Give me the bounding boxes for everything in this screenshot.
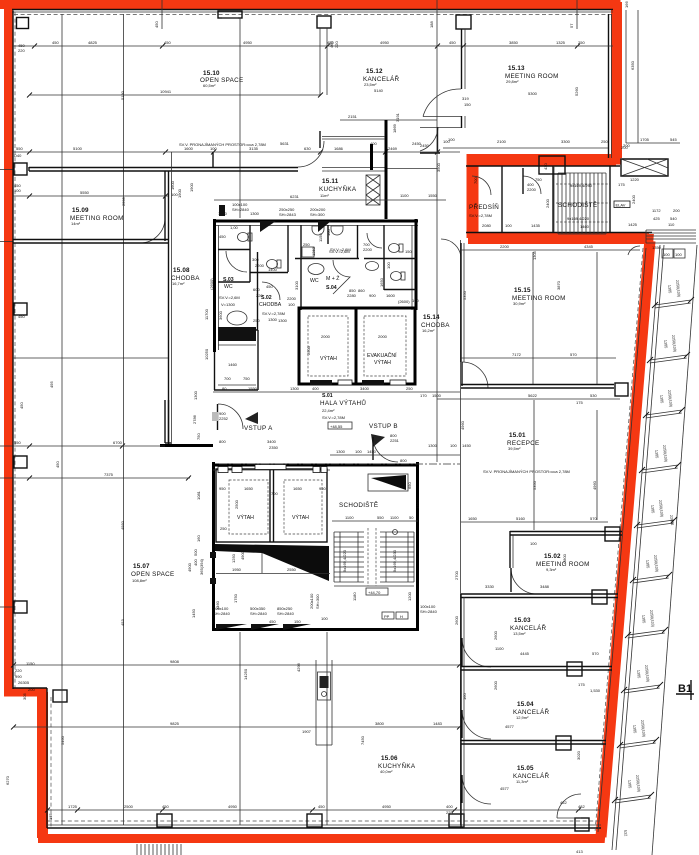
svg-text:400: 400: [446, 804, 453, 809]
svg-text:15.06: 15.06: [381, 755, 398, 762]
svg-text:413: 413: [576, 849, 583, 854]
svg-text:1,530: 1,530: [590, 688, 601, 693]
svg-text:D40: D40: [14, 153, 22, 158]
svg-text:450: 450: [154, 21, 159, 28]
svg-text:SH=2840: SH=2840: [420, 609, 438, 614]
svg-text:650: 650: [407, 482, 412, 489]
svg-text:1435: 1435: [531, 223, 541, 228]
svg-text:450: 450: [164, 40, 171, 45]
svg-text:1250: 1250: [311, 246, 316, 256]
svg-text:188: 188: [429, 21, 434, 28]
svg-text:1650: 1650: [244, 486, 254, 491]
svg-text:540: 540: [670, 216, 677, 221]
svg-text:250: 250: [406, 386, 413, 391]
svg-text:3870: 3870: [556, 280, 561, 290]
svg-text:100: 100: [386, 262, 391, 269]
svg-text:450: 450: [327, 40, 334, 45]
svg-text:4296: 4296: [296, 662, 301, 672]
svg-text:1300: 1300: [428, 443, 438, 448]
svg-text:1300: 1300: [278, 318, 288, 323]
svg-text:SV.V.=2,78M: SV.V.=2,78M: [262, 311, 285, 316]
svg-text:225: 225: [446, 810, 453, 815]
svg-text:3100: 3100: [294, 280, 299, 290]
svg-text:50: 50: [409, 515, 414, 520]
svg-text:750: 750: [243, 376, 250, 381]
svg-text:150: 150: [294, 619, 301, 624]
svg-text:450: 450: [219, 234, 226, 239]
svg-text:15.05: 15.05: [517, 765, 534, 772]
svg-text:100: 100: [326, 229, 331, 236]
svg-text:ELAV: ELAV: [616, 203, 626, 208]
svg-text:750: 750: [535, 177, 542, 182]
svg-text:9825: 9825: [170, 721, 180, 726]
svg-text:B1: B1: [678, 683, 692, 695]
svg-text:450: 450: [55, 461, 60, 468]
svg-text:250: 250: [253, 318, 260, 323]
svg-text:300: 300: [252, 257, 259, 262]
svg-text:1180: 1180: [352, 592, 357, 601]
svg-text:WC: WC: [224, 284, 233, 290]
svg-text:2200: 2200: [255, 263, 265, 268]
svg-text:57: 57: [569, 23, 574, 28]
svg-text:700: 700: [271, 491, 278, 496]
svg-text:450: 450: [18, 314, 25, 319]
svg-text:7375: 7375: [104, 472, 114, 477]
svg-text:2500: 2500: [124, 804, 134, 809]
svg-text:482: 482: [578, 804, 585, 809]
svg-text:400: 400: [312, 386, 319, 391]
svg-text:1600: 1600: [386, 293, 396, 298]
svg-text:175: 175: [48, 813, 53, 820]
svg-text:SCHODIŠTĚ: SCHODIŠTĚ: [558, 200, 597, 209]
svg-text:2200: 2200: [500, 244, 510, 249]
svg-text:11700: 11700: [204, 308, 209, 320]
svg-text:5631: 5631: [280, 141, 290, 146]
svg-text:(2600): (2600): [209, 278, 214, 290]
svg-text:1300: 1300: [336, 449, 346, 454]
svg-text:6700: 6700: [113, 440, 123, 445]
svg-text:200: 200: [28, 687, 35, 692]
svg-text:39,5m²: 39,5m²: [508, 446, 521, 451]
svg-text:2400: 2400: [545, 198, 550, 208]
svg-text:15.14: 15.14: [423, 314, 440, 321]
svg-text:CHODBA: CHODBA: [259, 302, 282, 308]
svg-text:100: 100: [505, 223, 512, 228]
svg-text:4950: 4950: [380, 40, 390, 45]
svg-text:HALA VÝTAHŮ: HALA VÝTAHŮ: [320, 398, 366, 407]
svg-text:40,0m²: 40,0m²: [380, 769, 393, 774]
svg-text:OPEN SPACE: OPEN SPACE: [131, 571, 174, 578]
svg-text:5350: 5350: [462, 290, 467, 300]
svg-text:1550: 1550: [428, 193, 438, 198]
svg-text:1869: 1869: [392, 123, 397, 133]
svg-text:S.03: S.03: [223, 277, 234, 283]
svg-text:900: 900: [369, 293, 376, 298]
svg-text:6350: 6350: [630, 60, 635, 70]
svg-text:S.02: S.02: [261, 295, 272, 301]
svg-text:1460: 1460: [228, 362, 238, 367]
svg-text:160: 160: [462, 693, 467, 700]
svg-text:110: 110: [668, 222, 675, 227]
svg-text:VSTUP B: VSTUP B: [369, 423, 398, 430]
svg-text:4960: 4960: [460, 420, 465, 430]
svg-text:1500: 1500: [432, 393, 442, 398]
svg-text:SV.V.=2,6M: SV.V.=2,6M: [219, 295, 240, 300]
svg-text:2280: 2280: [347, 293, 357, 298]
svg-text:530: 530: [590, 393, 597, 398]
svg-text:200x100: 200x100: [309, 593, 314, 609]
svg-text:SV.V.=2,78M: SV.V.=2,78M: [322, 415, 345, 420]
svg-text:4950: 4950: [228, 804, 238, 809]
svg-text:630: 630: [304, 146, 311, 151]
svg-text:11m²: 11m²: [320, 193, 329, 198]
svg-text:PŘEDSÍŇ: PŘEDSÍŇ: [469, 202, 499, 211]
svg-text:9x169,4/220: 9x169,4/220: [567, 216, 590, 221]
svg-text:5300: 5300: [528, 91, 538, 96]
svg-text:250: 250: [578, 40, 585, 45]
svg-text:100: 100: [530, 541, 537, 546]
svg-text:750: 750: [196, 433, 201, 440]
svg-text:15.04: 15.04: [517, 701, 534, 708]
svg-text:3600: 3600: [218, 310, 223, 320]
svg-text:450: 450: [19, 402, 24, 409]
svg-text:2450: 2450: [420, 143, 430, 148]
svg-text:1100: 1100: [400, 193, 409, 198]
svg-text:700: 700: [473, 177, 478, 184]
svg-text:9x169,4/220: 9x169,4/220: [342, 549, 347, 572]
svg-text:1907: 1907: [302, 729, 312, 734]
svg-text:1172: 1172: [652, 208, 661, 213]
svg-text:1250: 1250: [231, 553, 236, 563]
svg-text:2350: 2350: [269, 445, 279, 450]
svg-text:3850: 3850: [509, 40, 519, 45]
svg-text:1305: 1305: [532, 250, 537, 260]
svg-text:1483: 1483: [433, 721, 443, 726]
svg-text:15.10: 15.10: [203, 70, 220, 77]
svg-text:100: 100: [675, 252, 682, 257]
svg-text:175: 175: [578, 682, 585, 687]
svg-text:2400: 2400: [631, 194, 636, 204]
svg-text:10941: 10941: [160, 89, 172, 94]
svg-text:2786: 2786: [192, 414, 197, 424]
svg-text:220: 220: [15, 668, 22, 673]
svg-text:1100: 1100: [345, 515, 354, 520]
svg-text:7450: 7450: [360, 735, 365, 745]
svg-text:150: 150: [405, 249, 412, 254]
svg-text:4900: 4900: [240, 550, 245, 560]
svg-text:1750: 1750: [233, 593, 238, 603]
svg-text:14m²: 14m²: [71, 221, 81, 226]
svg-text:2700: 2700: [454, 570, 459, 580]
svg-text:3300: 3300: [561, 139, 571, 144]
svg-text:4345: 4345: [584, 244, 594, 249]
svg-text:SV.V. PRONAJÍMANÝCH PROSTOR=: SV.V. PRONAJÍMANÝCH PROSTOR=cca 2,78M: [179, 142, 266, 147]
svg-text:100: 100: [288, 302, 295, 307]
svg-text:4950: 4950: [120, 520, 125, 530]
svg-text:VÝTAH: VÝTAH: [292, 514, 309, 521]
svg-text:450: 450: [266, 284, 273, 289]
svg-text:15.01: 15.01: [509, 432, 526, 439]
svg-text:S.01: S.01: [322, 393, 333, 399]
svg-text:3020: 3020: [576, 750, 581, 760]
svg-text:6270: 6270: [5, 775, 10, 785]
svg-text:100: 100: [448, 137, 455, 142]
svg-text:1400: 1400: [268, 267, 278, 272]
svg-text:108,8m²: 108,8m²: [132, 578, 147, 583]
svg-text:200: 200: [673, 208, 680, 213]
svg-text:PP: PP: [384, 614, 390, 619]
svg-text:3488: 3488: [540, 584, 550, 589]
svg-text:WC: WC: [310, 278, 319, 284]
svg-text:80: 80: [222, 386, 227, 391]
svg-text:4950: 4950: [243, 40, 253, 45]
svg-text:5460: 5460: [60, 735, 65, 745]
svg-text:550: 550: [16, 146, 23, 151]
svg-text:3800: 3800: [375, 721, 385, 726]
svg-text:11,3m²: 11,3m²: [516, 779, 529, 784]
svg-text:2500: 2500: [234, 499, 239, 509]
svg-text:950: 950: [219, 486, 226, 491]
svg-text:6231: 6231: [290, 194, 300, 199]
svg-text:4577: 4577: [500, 786, 510, 791]
svg-text:1300: 1300: [268, 317, 278, 322]
svg-text:570: 570: [570, 352, 577, 357]
svg-text:570: 570: [590, 516, 597, 521]
svg-text:VÝTAH: VÝTAH: [320, 355, 337, 362]
svg-text:1725: 1725: [68, 804, 78, 809]
svg-text:2600: 2600: [493, 630, 498, 640]
svg-text:+44,70: +44,70: [368, 590, 381, 595]
svg-text:5550: 5550: [80, 190, 90, 195]
svg-text:1450: 1450: [191, 608, 196, 618]
svg-text:SH=2840: SH=2840: [213, 611, 231, 616]
svg-text:600: 600: [253, 287, 260, 292]
svg-text:29,8m²: 29,8m²: [506, 79, 519, 84]
svg-text:4445: 4445: [520, 651, 530, 656]
svg-text:16,2m²: 16,2m²: [422, 328, 435, 333]
svg-text:452: 452: [560, 800, 567, 805]
svg-text:1220: 1220: [630, 177, 640, 182]
svg-text:2151: 2151: [348, 114, 358, 119]
svg-text:450: 450: [318, 804, 325, 809]
svg-text:1686: 1686: [334, 146, 344, 151]
svg-text:9x169,4/230: 9x169,4/230: [392, 549, 397, 572]
svg-text:3330: 3330: [485, 584, 495, 589]
svg-text:1081: 1081: [196, 490, 201, 500]
svg-text:2000: 2000: [321, 334, 331, 339]
svg-text:14250: 14250: [243, 668, 248, 680]
svg-text:VÝTAH: VÝTAH: [374, 359, 391, 366]
svg-text:13,5m²: 13,5m²: [513, 631, 526, 636]
svg-text:SV.V.=2,78M: SV.V.=2,78M: [469, 213, 492, 218]
svg-text:1900: 1900: [177, 188, 182, 198]
svg-text:800: 800: [400, 458, 407, 463]
svg-text:(2600): (2600): [398, 299, 410, 304]
svg-text:800: 800: [219, 439, 226, 444]
svg-text:450: 450: [162, 804, 169, 809]
svg-text:950: 950: [319, 486, 326, 491]
svg-text:150: 150: [464, 102, 471, 107]
svg-text:30,9m²: 30,9m²: [513, 301, 526, 306]
svg-text:2200: 2200: [363, 247, 373, 252]
svg-text:15.09: 15.09: [72, 207, 89, 214]
svg-text:7172: 7172: [512, 352, 522, 357]
svg-text:1150: 1150: [26, 661, 35, 666]
svg-text:1550: 1550: [248, 386, 258, 391]
svg-text:15.12: 15.12: [366, 68, 383, 75]
svg-text:26305: 26305: [18, 680, 30, 685]
svg-text:1600: 1600: [170, 180, 175, 190]
svg-text:1450: 1450: [462, 443, 472, 448]
svg-text:1100: 1100: [495, 646, 504, 651]
svg-text:VSTUP A: VSTUP A: [244, 425, 273, 432]
svg-text:2469: 2469: [388, 146, 398, 151]
svg-text:2200: 2200: [527, 187, 537, 192]
svg-text:4825: 4825: [88, 40, 98, 45]
svg-text:VÝTAH: VÝTAH: [237, 514, 254, 521]
svg-text:550: 550: [14, 440, 21, 445]
svg-text:425: 425: [653, 216, 660, 221]
svg-text:SV.V.=2,6M: SV.V.=2,6M: [329, 249, 350, 254]
svg-text:4960: 4960: [592, 480, 597, 490]
svg-text:430: 430: [543, 163, 548, 170]
svg-text:175: 175: [618, 182, 625, 187]
svg-text:15.02: 15.02: [544, 553, 561, 560]
svg-text:450: 450: [269, 619, 276, 624]
svg-text:5260: 5260: [574, 86, 579, 96]
svg-text:990: 990: [15, 674, 22, 679]
svg-text:SH=2840: SH=2840: [250, 611, 268, 616]
svg-text:532: 532: [623, 830, 628, 837]
svg-text:KUCHYŇKA: KUCHYŇKA: [319, 184, 357, 193]
svg-text:23,5m²: 23,5m²: [364, 82, 377, 87]
svg-text:3500: 3500: [436, 162, 441, 172]
svg-text:SH=2840: SH=2840: [277, 611, 295, 616]
svg-text:2550: 2550: [287, 567, 297, 572]
svg-text:15.03: 15.03: [514, 617, 531, 624]
svg-text:200: 200: [621, 145, 628, 150]
svg-text:2450: 2450: [412, 141, 422, 146]
svg-text:453: 453: [120, 619, 125, 626]
svg-text:1650: 1650: [468, 516, 478, 521]
svg-text:2252: 2252: [219, 416, 229, 421]
svg-text:220: 220: [334, 41, 339, 48]
svg-text:9,3m²: 9,3m²: [546, 567, 557, 572]
svg-text:319: 319: [462, 96, 469, 101]
svg-text:250: 250: [303, 242, 310, 247]
svg-text:SCHODIŠTĚ: SCHODIŠTĚ: [339, 500, 378, 509]
svg-text:1900: 1900: [189, 182, 194, 192]
svg-text:250: 250: [601, 139, 608, 144]
svg-text:166: 166: [624, 1, 629, 8]
svg-text:450: 450: [449, 40, 456, 45]
svg-text:+48,55: +48,55: [330, 424, 343, 429]
svg-text:1,00: 1,00: [230, 225, 239, 230]
svg-text:450: 450: [52, 40, 59, 45]
svg-text:1705: 1705: [640, 137, 650, 142]
svg-text:100: 100: [663, 252, 670, 257]
svg-text:15.11: 15.11: [322, 178, 339, 185]
svg-text:SH=2843: SH=2843: [279, 212, 297, 217]
svg-text:10250: 10250: [204, 348, 209, 360]
svg-text:1950: 1950: [232, 567, 242, 572]
svg-text:15.07: 15.07: [133, 563, 150, 570]
svg-text:S.04: S.04: [326, 285, 337, 291]
svg-text:2080: 2080: [482, 223, 492, 228]
svg-text:2800: 2800: [562, 553, 567, 563]
svg-text:2100: 2100: [497, 139, 507, 144]
svg-text:495: 495: [49, 381, 54, 388]
svg-text:1300: 1300: [193, 390, 198, 400]
svg-text:100: 100: [355, 449, 362, 454]
svg-text:SV.V. PRONAJÍMANÝCH PROSTOR=: SV.V. PRONAJÍMANÝCH PROSTOR=cca 2,78M: [483, 469, 570, 474]
svg-text:305: 305: [22, 693, 27, 700]
svg-text:1300: 1300: [250, 211, 260, 216]
svg-text:15.15: 15.15: [514, 287, 531, 294]
svg-text:160: 160: [196, 535, 201, 542]
svg-text:5160: 5160: [516, 516, 526, 521]
svg-text:1325: 1325: [556, 40, 566, 45]
svg-text:2000: 2000: [378, 334, 388, 339]
svg-text:2500: 2500: [306, 345, 311, 355]
svg-text:4950: 4950: [382, 804, 392, 809]
svg-text:5130: 5130: [120, 90, 125, 100]
svg-text:220: 220: [18, 48, 25, 53]
svg-text:250: 250: [321, 572, 328, 577]
svg-text:550: 550: [377, 515, 384, 520]
svg-text:15.08: 15.08: [173, 267, 190, 274]
svg-text:2595: 2595: [121, 196, 126, 206]
svg-text:400: 400: [193, 559, 198, 566]
svg-text:5622: 5622: [528, 393, 538, 398]
svg-text:SH=300: SH=300: [310, 212, 325, 217]
svg-text:545: 545: [670, 137, 677, 142]
svg-text:5140: 5140: [374, 88, 384, 93]
svg-text:1300: 1300: [290, 386, 300, 391]
svg-text:1650: 1650: [293, 486, 303, 491]
svg-text:860: 860: [358, 288, 365, 293]
svg-text:1450: 1450: [367, 449, 377, 454]
svg-text:5100: 5100: [73, 146, 83, 151]
svg-text:60,5m²: 60,5m²: [203, 83, 216, 88]
svg-text:1425: 1425: [628, 222, 638, 227]
svg-text:1100: 1100: [390, 515, 399, 520]
svg-text:5350: 5350: [532, 480, 537, 490]
svg-text:V=1300: V=1300: [221, 302, 236, 307]
svg-text:H: H: [400, 614, 403, 619]
svg-text:100: 100: [14, 188, 21, 193]
svg-text:175: 175: [576, 400, 583, 405]
svg-text:16,7m²: 16,7m²: [172, 281, 185, 286]
svg-text:1650: 1650: [379, 277, 384, 287]
svg-text:3400: 3400: [360, 386, 370, 391]
svg-text:570: 570: [592, 651, 599, 656]
svg-text:250: 250: [220, 526, 227, 531]
svg-text:100: 100: [450, 443, 457, 448]
svg-text:3191: 3191: [395, 112, 400, 122]
svg-text:22,4m²: 22,4m²: [322, 408, 335, 413]
svg-text:1360: 1360: [415, 499, 420, 509]
svg-text:1460: 1460: [580, 224, 590, 229]
svg-text:4577: 4577: [505, 724, 515, 729]
svg-text:100: 100: [321, 616, 328, 621]
svg-text:365(394): 365(394): [199, 558, 204, 575]
svg-text:15.13: 15.13: [508, 65, 525, 72]
svg-text:EVAKUAČNÍ: EVAKUAČNÍ: [367, 352, 397, 359]
svg-text:SH=300: SH=300: [315, 594, 320, 609]
svg-text:100: 100: [412, 298, 419, 303]
svg-text:2251: 2251: [390, 438, 400, 443]
